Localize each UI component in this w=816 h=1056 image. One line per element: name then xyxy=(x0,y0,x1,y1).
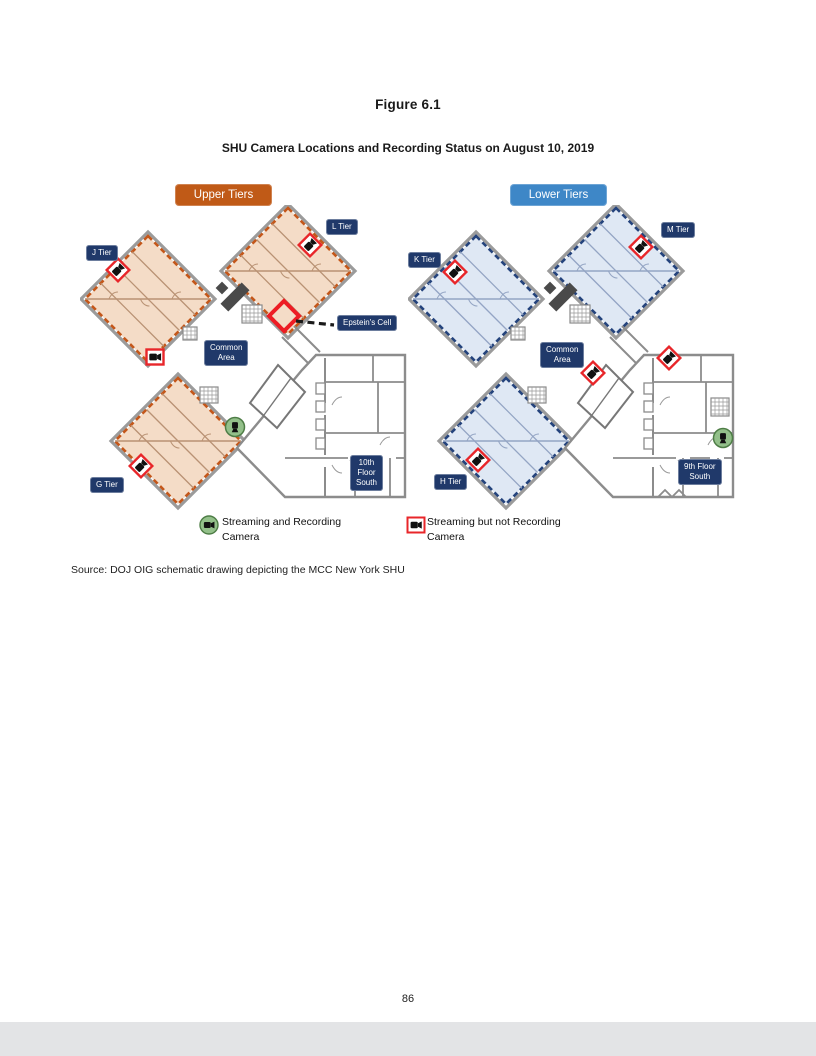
streaming-recording-camera-label: Streaming and Recording Camera xyxy=(222,515,382,544)
source-note: Source: DOJ OIG schematic drawing depict… xyxy=(71,564,405,576)
page-number: 86 xyxy=(0,993,816,1005)
epsteins-cell-label: Epstein's Cell xyxy=(337,315,397,331)
figure-label: Figure 6.1 xyxy=(0,97,816,112)
lower-tiers-header: Lower Tiers xyxy=(510,184,607,206)
l-tier-label: L Tier xyxy=(326,219,358,235)
upper-tiers-header: Upper Tiers xyxy=(175,184,272,206)
streaming-recording-camera-icon xyxy=(198,514,220,536)
streaming-not-recording-camera-icon xyxy=(405,514,427,536)
g-tier-label: G Tier xyxy=(90,477,124,493)
common-area-label: Common Area xyxy=(540,342,584,368)
h-tier-label: H Tier xyxy=(434,474,467,490)
m-tier-label: M Tier xyxy=(661,222,695,238)
footer-band xyxy=(0,1022,816,1056)
tenth-floor-south-label: 10th Floor South xyxy=(350,455,383,491)
streaming-not-recording-camera-label: Streaming but not Recording Camera xyxy=(427,515,602,544)
lower-tiers-floorplan: K TierM TierH TierCommon Area9th Floor S… xyxy=(408,205,738,515)
upper-tiers-floorplan: J TierL TierG TierCommon AreaEpstein's C… xyxy=(80,205,410,515)
figure-title: SHU Camera Locations and Recording Statu… xyxy=(0,141,816,155)
common-area-label: Common Area xyxy=(204,340,248,366)
streaming-recording-camera-icon xyxy=(714,429,733,448)
ninth-floor-south-label: 9th Floor South xyxy=(678,459,722,485)
streaming-recording-camera-icon xyxy=(226,418,245,437)
k-tier-label: K Tier xyxy=(408,252,441,268)
j-tier-label: J Tier xyxy=(86,245,118,261)
streaming-not-recording-camera-icon xyxy=(147,350,164,365)
